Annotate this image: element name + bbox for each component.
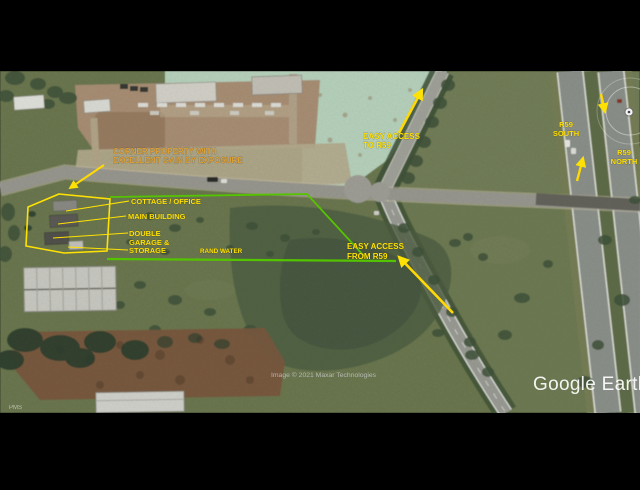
easy-access-to-label-line2: TO R59 [363,141,391,150]
easy-access-from-label-line1: EASY ACCESS [347,242,405,251]
garage-label-line1: DOUBLE [129,229,161,238]
corner-property-label-line2: EXCELLENT GAIN BY EXPOSURE [113,156,243,165]
satellite-map[interactable]: CORNER PROPERTY WITH EXCELLENT GAIN BY E… [0,0,640,490]
main-building-label: MAIN BUILDING [128,212,186,221]
satellite-imagery [0,71,640,413]
r59-south-label-line1: R59 [559,120,573,129]
corner-property-label-line1: CORNER PROPERTY WITH [113,147,217,156]
garage-label-line3: STORAGE [129,246,166,255]
rand-water-label: RAND WATER [200,248,243,255]
r59-south-label-line2: SOUTH [553,129,579,138]
google-earth-watermark: Google Earth [533,374,640,395]
map-label-fragment: PMS [9,405,22,411]
r59-north-label-line1: R59 [617,148,631,157]
easy-access-from-label-line2: FROM R59 [347,252,388,261]
cottage-office-label: COTTAGE / OFFICE [131,197,201,206]
r59-north-label-line2: NORTH [611,157,638,166]
google-earth-viewport: CORNER PROPERTY WITH EXCELLENT GAIN BY E… [0,0,640,490]
easy-access-to-label-line1: EASY ACCESS [363,132,421,141]
imagery-attribution: Image © 2021 Maxar Technologies [271,371,377,379]
